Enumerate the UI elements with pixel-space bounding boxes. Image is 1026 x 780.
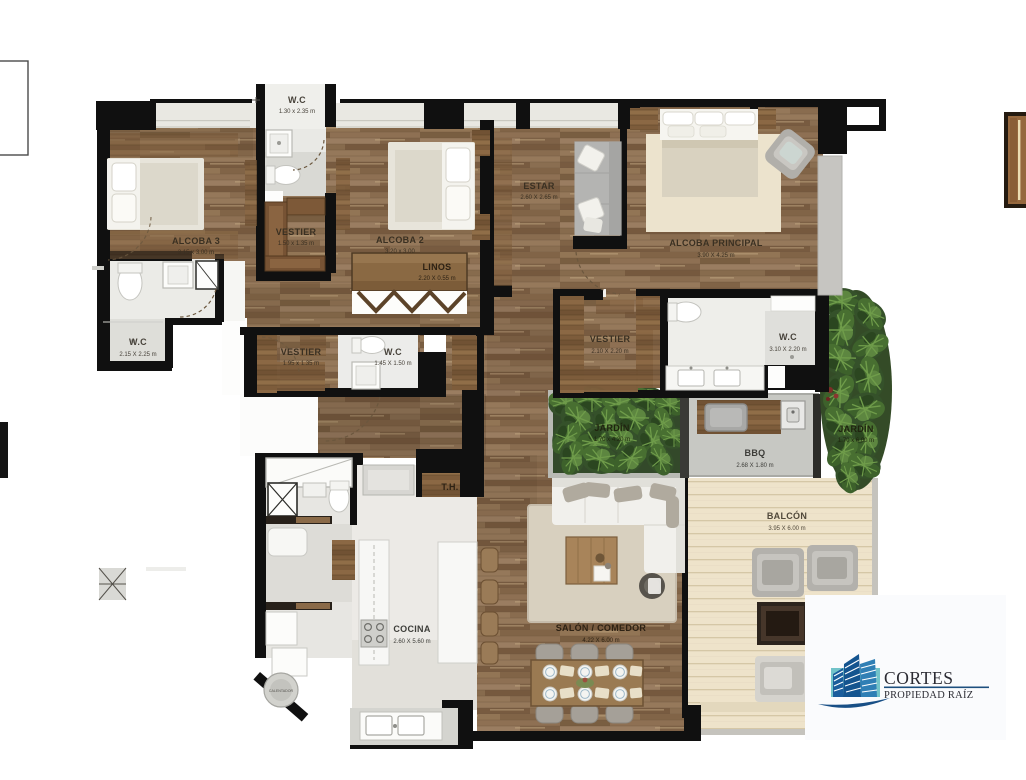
- svg-text:1.95 x 1.35 m: 1.95 x 1.35 m: [283, 361, 319, 367]
- svg-text:3.10 X 2.20 m: 3.10 X 2.20 m: [769, 347, 806, 353]
- svg-text:CALENTADOR: CALENTADOR: [269, 689, 294, 693]
- svg-text:2.68 X 1.80 m: 2.68 X 1.80 m: [736, 463, 773, 469]
- svg-text:JARDÍN: JARDÍN: [594, 423, 629, 433]
- svg-text:T.H.: T.H.: [441, 482, 458, 492]
- svg-text:COCINA: COCINA: [393, 624, 430, 634]
- svg-text:1.45 X 1.50 m: 1.45 X 1.50 m: [374, 361, 411, 367]
- svg-text:1.70 x 6.00 m: 1.70 x 6.00 m: [838, 438, 874, 444]
- svg-text:W.C: W.C: [779, 332, 797, 342]
- svg-text:3.90 X 4.25 m: 3.90 X 4.25 m: [697, 253, 734, 259]
- svg-text:SALÓN / COMEDOR: SALÓN / COMEDOR: [556, 622, 647, 633]
- svg-text:2.15 X 2.25 m: 2.15 X 2.25 m: [119, 352, 156, 358]
- svg-text:ESTAR: ESTAR: [523, 181, 555, 191]
- svg-text:1.70 x 4.20 m: 1.70 x 4.20 m: [594, 437, 630, 443]
- svg-text:VESTIER: VESTIER: [281, 347, 322, 357]
- svg-text:VESTIER: VESTIER: [590, 334, 631, 344]
- svg-text:2.60 X 2.65 m: 2.60 X 2.65 m: [520, 195, 557, 201]
- svg-text:BALCÓN: BALCÓN: [767, 510, 807, 521]
- svg-text:2.20 X 0.55 m: 2.20 X 0.55 m: [418, 276, 455, 282]
- svg-text:2.10 X 2.20 m: 2.10 X 2.20 m: [591, 349, 628, 355]
- svg-text:1.50 x 1.35 m: 1.50 x 1.35 m: [278, 241, 314, 247]
- svg-text:3.20 x 3.00: 3.20 x 3.00: [385, 249, 415, 255]
- svg-text:ALCOBA 3: ALCOBA 3: [172, 236, 220, 246]
- svg-text:VESTIER: VESTIER: [276, 227, 317, 237]
- svg-text:LINOS: LINOS: [422, 262, 451, 272]
- svg-text:1.30 x 2.35 m: 1.30 x 2.35 m: [279, 109, 315, 115]
- svg-text:4.22 X 6.00 m: 4.22 X 6.00 m: [582, 638, 619, 644]
- svg-text:W.C: W.C: [288, 95, 306, 105]
- svg-text:BBQ: BBQ: [745, 448, 766, 458]
- svg-text:ALCOBA PRINCIPAL: ALCOBA PRINCIPAL: [669, 238, 762, 248]
- svg-text:W.C: W.C: [384, 347, 402, 357]
- svg-text:2.60 X 5.60 m: 2.60 X 5.60 m: [393, 639, 430, 645]
- svg-text:3.95 X 6.00 m: 3.95 X 6.00 m: [768, 526, 805, 532]
- svg-text:ALCOBA 2: ALCOBA 2: [376, 235, 424, 245]
- svg-text:3.15 x 3.00 m: 3.15 x 3.00 m: [178, 250, 214, 256]
- svg-text:JARDÍN: JARDÍN: [838, 424, 873, 434]
- svg-text:CORTES: CORTES: [884, 668, 954, 688]
- svg-text:W.C: W.C: [129, 337, 147, 347]
- svg-text:PROPIEDAD RAÍZ: PROPIEDAD RAÍZ: [884, 689, 973, 701]
